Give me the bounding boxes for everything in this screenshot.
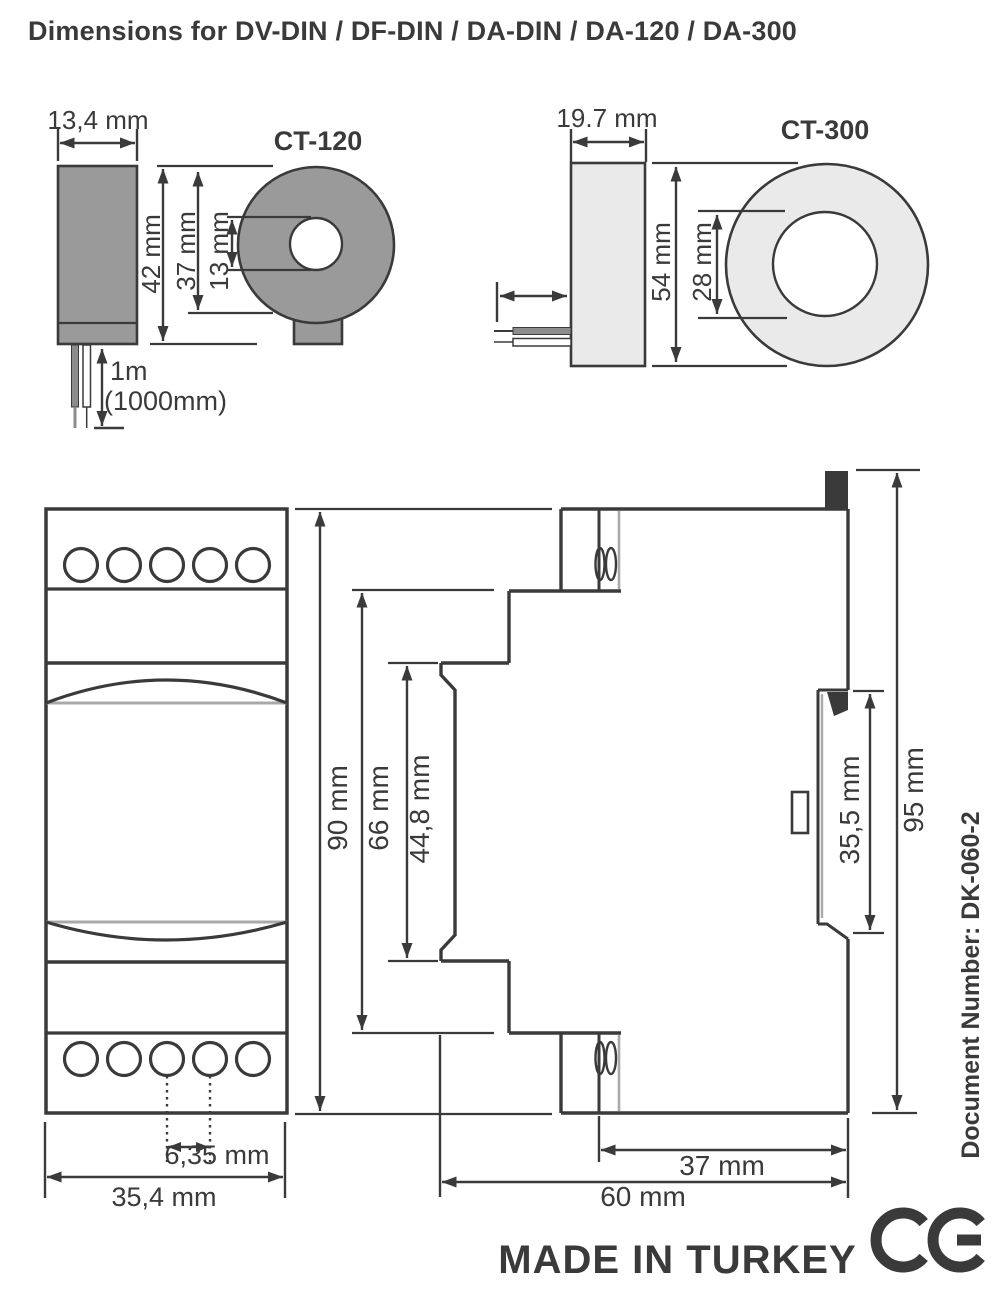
module-total-height-label: 95 mm bbox=[900, 720, 928, 860]
top-clip-window bbox=[596, 509, 620, 591]
ct120-cable-length-alt-label: (1000mm) bbox=[104, 386, 227, 417]
label-window-top-arc bbox=[46, 680, 287, 703]
label-window-bottom-arc bbox=[46, 922, 287, 940]
bottom-clip-window bbox=[596, 1033, 620, 1113]
made-in-label: MADE IN TURKEY bbox=[480, 1238, 875, 1282]
din-module-side-view bbox=[441, 471, 848, 1113]
module-body-height-label: 66 mm bbox=[365, 738, 393, 878]
ct120-cable-length-label: 1m bbox=[110, 356, 148, 387]
ct120-hole-label: 13 mm bbox=[205, 181, 233, 321]
ct120-hole bbox=[290, 218, 342, 270]
module-front-width-label: 35,4 mm bbox=[97, 1183, 231, 1211]
ct300-front-view bbox=[698, 164, 928, 366]
ct300-wire-white bbox=[513, 339, 571, 347]
ct300-side-view bbox=[494, 163, 645, 366]
din-module-front-view bbox=[46, 509, 287, 1113]
ct120-name-label: CT-120 bbox=[268, 127, 368, 155]
ct300-outer-height-label: 54 mm bbox=[647, 192, 675, 332]
module-terminal-pitch-label: 6,35 mm bbox=[150, 1141, 284, 1169]
din-clip-spring-wedge bbox=[827, 692, 848, 716]
dimension-drawing-page: Dimensions for DV-DIN / DF-DIN / DA-DIN … bbox=[0, 0, 999, 1289]
page-title: Dimensions for DV-DIN / DF-DIN / DA-DIN … bbox=[28, 16, 797, 47]
top-terminal-holes bbox=[65, 549, 270, 582]
din-clip-top-tab bbox=[825, 471, 848, 509]
module-face-height-label: 44,8 mm bbox=[406, 734, 434, 884]
ct120-width-label: 13,4 mm bbox=[43, 106, 153, 134]
module-front-height-label: 90 mm bbox=[324, 738, 352, 878]
din-clip-release-tab bbox=[792, 792, 808, 833]
ct120-wire-gray bbox=[72, 345, 79, 407]
din-module-front-dimensions bbox=[45, 509, 552, 1198]
module-rail-slot-height-label: 35,5 mm bbox=[836, 735, 864, 885]
document-number-label: Document Number: DK-060-2 bbox=[957, 800, 985, 1170]
ct120-front-view bbox=[227, 167, 394, 344]
ct120-ring-height-label: 37 mm bbox=[172, 181, 200, 321]
ct300-width-label: 19.7 mm bbox=[552, 104, 662, 132]
ct120-wire-white bbox=[83, 345, 91, 407]
bottom-terminal-holes bbox=[65, 1043, 270, 1076]
ct300-hole-label: 28 mm bbox=[688, 192, 716, 332]
ct300-wire-gray bbox=[513, 328, 571, 335]
ct120-outer-height-label: 42 mm bbox=[137, 184, 165, 324]
ct300-hole bbox=[773, 212, 877, 316]
ct300-name-label: CT-300 bbox=[775, 116, 875, 144]
module-rail-depth-label: 37 mm bbox=[655, 1152, 789, 1180]
module-total-depth-label: 60 mm bbox=[576, 1183, 710, 1211]
ce-mark-icon bbox=[876, 1213, 981, 1267]
